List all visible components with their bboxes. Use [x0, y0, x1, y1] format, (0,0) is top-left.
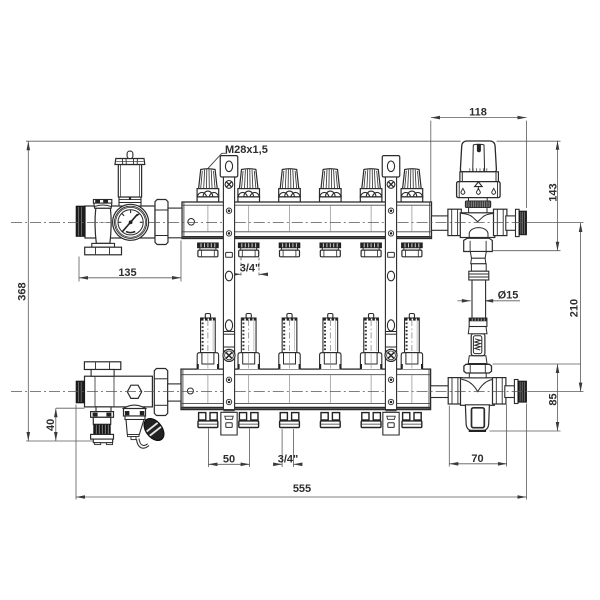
- svg-text:143: 143: [547, 183, 559, 201]
- svg-text:85: 85: [547, 393, 559, 405]
- svg-text:50: 50: [223, 454, 235, 466]
- svg-text:70: 70: [471, 453, 483, 465]
- svg-text:40: 40: [45, 419, 57, 431]
- svg-text:3/4": 3/4": [240, 263, 261, 275]
- svg-text:3/4": 3/4": [278, 453, 299, 465]
- svg-text:368: 368: [17, 282, 29, 300]
- svg-text:555: 555: [293, 483, 311, 495]
- svg-text:118: 118: [469, 107, 487, 119]
- svg-text:M28x1,5: M28x1,5: [225, 144, 268, 156]
- svg-text:135: 135: [118, 267, 136, 279]
- svg-text:210: 210: [569, 299, 581, 317]
- svg-text:Ø15: Ø15: [498, 289, 519, 301]
